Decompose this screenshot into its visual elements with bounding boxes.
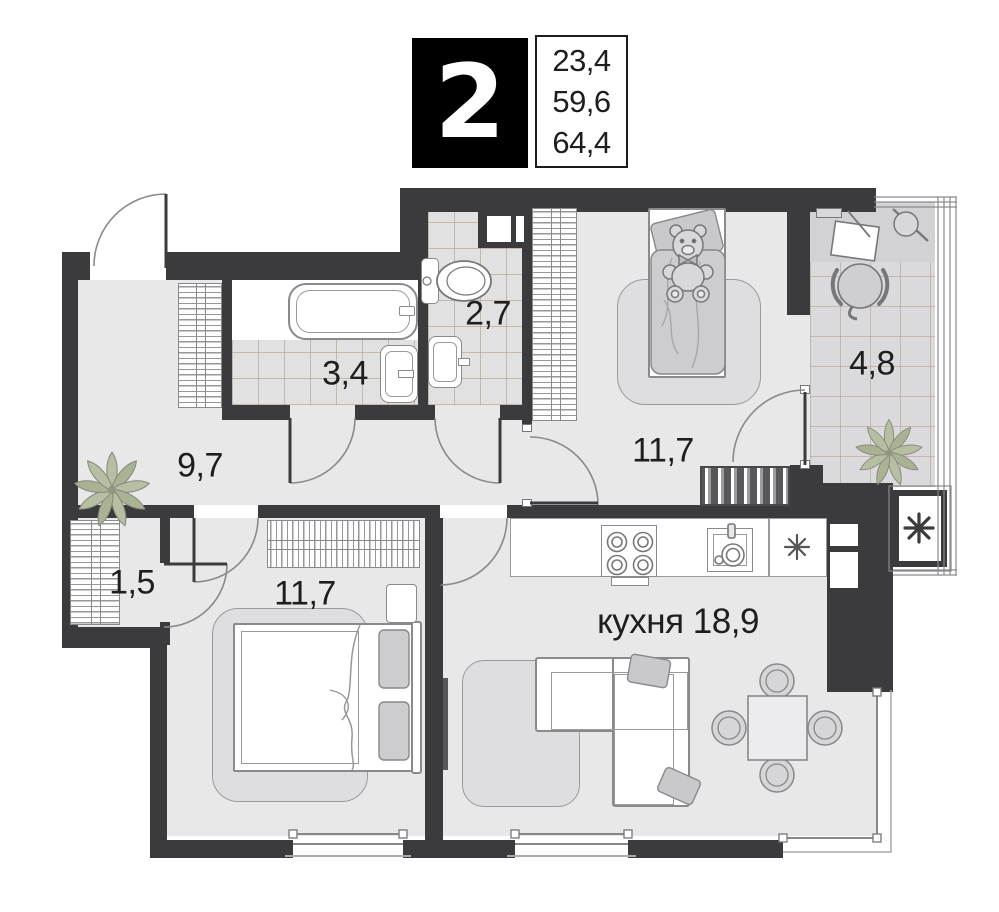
counter-divider xyxy=(768,519,770,576)
door-jamb xyxy=(800,385,810,394)
duct-shaft xyxy=(830,552,858,588)
tv xyxy=(443,678,448,770)
master-wardrobe xyxy=(267,520,420,568)
room-label-closet: 1,5 xyxy=(109,564,155,603)
duct-shaft xyxy=(830,524,858,546)
radiator xyxy=(700,466,790,506)
room-label-master-bedroom: 11,7 xyxy=(274,575,336,614)
wall-segment xyxy=(507,505,830,518)
master-bed-sheet xyxy=(241,631,359,764)
wall-segment xyxy=(222,405,290,420)
sink-tap xyxy=(458,358,470,366)
wall-segment xyxy=(425,518,443,840)
rooms-count-badge: 2 xyxy=(412,38,528,168)
kitchen-sink-inner xyxy=(713,534,747,566)
room-label-hallway: 9,7 xyxy=(177,447,223,486)
sofa-seat xyxy=(614,674,674,805)
wall-segment xyxy=(355,405,435,420)
wall-segment xyxy=(150,645,167,840)
duct-shaft xyxy=(516,216,524,242)
floor-plan: 2 23,4 59,6 64,4 xyxy=(0,0,999,912)
bathtub-inner xyxy=(296,290,410,333)
area-stats-box: 23,4 59,6 64,4 xyxy=(535,35,628,168)
bathtub-faucet xyxy=(399,306,415,316)
master-headboard xyxy=(411,621,422,774)
child-bed xyxy=(648,208,726,378)
room-label-child-bedroom: 11,7 xyxy=(632,432,694,471)
area-stat: 59,6 xyxy=(552,81,610,122)
wall-segment xyxy=(160,518,170,563)
wall-segment xyxy=(258,505,440,518)
stove xyxy=(601,525,657,577)
room-label-balcony: 4,8 xyxy=(849,345,895,384)
wall-segment xyxy=(628,840,783,858)
toilet-tank xyxy=(421,258,439,304)
area-stat: 64,4 xyxy=(552,122,610,163)
entry-wardrobe xyxy=(178,283,222,408)
rooms-count: 2 xyxy=(435,52,506,154)
room-label-bathroom: 3,4 xyxy=(322,355,368,394)
door-jamb xyxy=(800,460,810,469)
desk-shelf xyxy=(816,208,842,218)
child-wardrobe xyxy=(532,208,577,421)
wc-sink-inner xyxy=(433,342,457,382)
room-label-kitchen: кухня 18,9 xyxy=(597,602,759,642)
wall-segment xyxy=(787,188,810,315)
door-jamb xyxy=(522,424,532,432)
nightstand xyxy=(386,584,417,623)
stove-handle xyxy=(611,577,649,586)
wall-segment xyxy=(160,622,170,645)
kitchen-counter xyxy=(510,518,827,577)
ac-niche xyxy=(899,496,941,561)
wall-segment xyxy=(810,483,893,518)
wall-segment xyxy=(222,280,232,405)
duct-shaft xyxy=(487,216,511,242)
area-stat: 23,4 xyxy=(552,40,610,81)
room-label-wc: 2,7 xyxy=(465,295,511,334)
wall-segment xyxy=(62,505,194,518)
wall-segment xyxy=(166,252,428,280)
sink-tap xyxy=(398,370,414,378)
wall-segment xyxy=(403,840,515,858)
wall-segment xyxy=(150,840,293,858)
door-jamb xyxy=(522,499,532,507)
